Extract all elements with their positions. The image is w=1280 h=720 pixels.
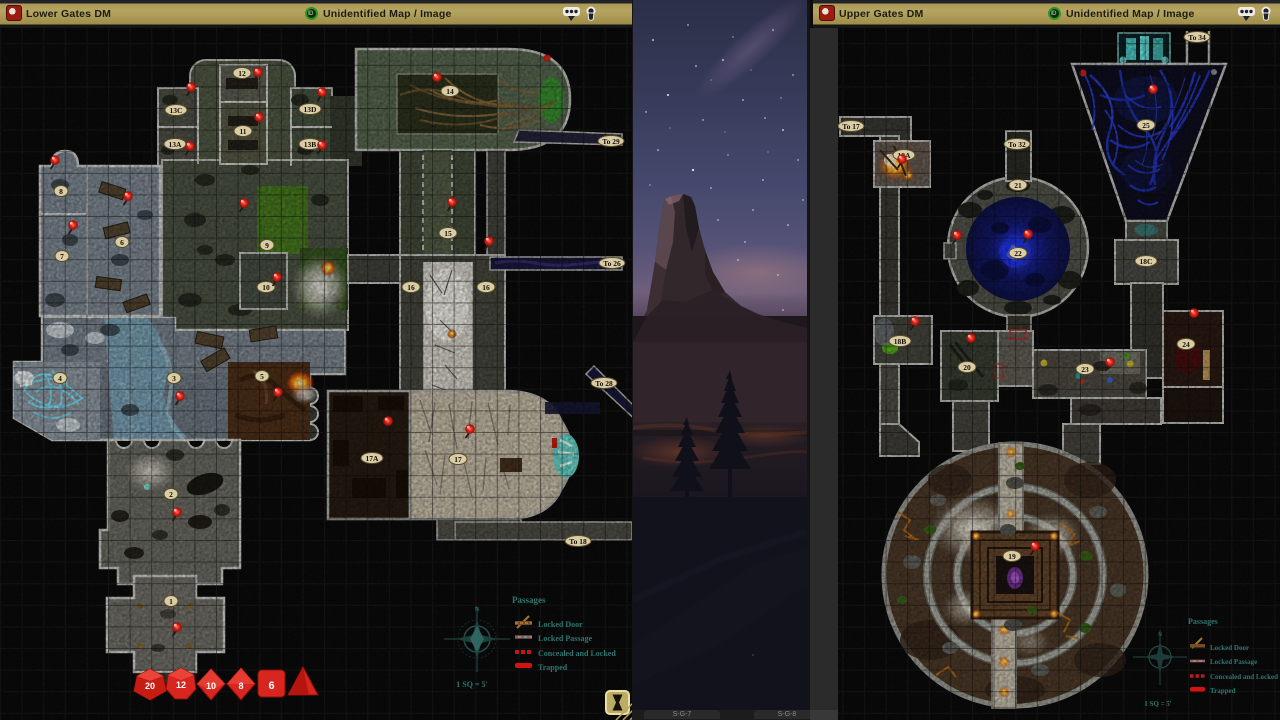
svg-text:2: 2 bbox=[169, 490, 173, 499]
svg-text:Passages: Passages bbox=[1188, 617, 1218, 626]
svg-text:To 17: To 17 bbox=[842, 122, 860, 131]
svg-text:To 18: To 18 bbox=[569, 537, 587, 546]
svg-text:16: 16 bbox=[482, 283, 490, 292]
svg-text:1: 1 bbox=[169, 597, 173, 606]
svg-text:25: 25 bbox=[1142, 121, 1150, 130]
svg-text:To 28: To 28 bbox=[595, 379, 613, 388]
svg-text:3: 3 bbox=[172, 374, 176, 383]
svg-text:To 26: To 26 bbox=[603, 259, 621, 268]
svg-text:Trapped: Trapped bbox=[1210, 687, 1236, 695]
svg-text:13C: 13C bbox=[170, 106, 183, 115]
svg-text:19: 19 bbox=[1008, 552, 1016, 561]
svg-text:To 32: To 32 bbox=[1008, 140, 1026, 149]
svg-text:Locked Passage: Locked Passage bbox=[538, 634, 592, 643]
svg-text:13D: 13D bbox=[304, 105, 318, 114]
svg-text:12: 12 bbox=[176, 680, 186, 690]
svg-text:Locked Door: Locked Door bbox=[538, 620, 583, 629]
svg-text:Concealed and Locked: Concealed and Locked bbox=[538, 649, 616, 658]
svg-text:17: 17 bbox=[454, 455, 462, 464]
svg-text:9: 9 bbox=[265, 241, 269, 250]
svg-text:23: 23 bbox=[1081, 365, 1089, 374]
svg-text:8: 8 bbox=[59, 187, 63, 196]
svg-text:N: N bbox=[1158, 633, 1162, 638]
svg-text:1 SQ = 5': 1 SQ = 5' bbox=[456, 680, 487, 689]
svg-text:18B: 18B bbox=[894, 337, 907, 346]
svg-text:To 29: To 29 bbox=[602, 137, 620, 146]
svg-text:4: 4 bbox=[58, 374, 62, 383]
svg-text:16: 16 bbox=[407, 283, 415, 292]
svg-text:10: 10 bbox=[206, 681, 216, 691]
svg-text:18C: 18C bbox=[1140, 257, 1153, 266]
svg-text:7: 7 bbox=[60, 252, 64, 261]
svg-text:22: 22 bbox=[1014, 249, 1022, 258]
svg-text:12: 12 bbox=[238, 69, 246, 78]
svg-text:Concealed and Locked: Concealed and Locked bbox=[1210, 673, 1278, 681]
svg-text:24: 24 bbox=[1182, 340, 1190, 349]
svg-text:13B: 13B bbox=[304, 140, 317, 149]
svg-text:Locked Passage: Locked Passage bbox=[1210, 658, 1257, 666]
svg-text:17A: 17A bbox=[366, 454, 380, 463]
svg-text:21: 21 bbox=[1014, 181, 1022, 190]
svg-text:1 SQ = 5': 1 SQ = 5' bbox=[1144, 700, 1172, 708]
svg-text:Locked Door: Locked Door bbox=[1210, 644, 1249, 652]
svg-text:20: 20 bbox=[963, 363, 971, 372]
svg-text:Passages: Passages bbox=[512, 595, 546, 605]
svg-text:8: 8 bbox=[238, 681, 243, 691]
svg-text:14: 14 bbox=[446, 87, 454, 96]
svg-text:5: 5 bbox=[260, 372, 264, 381]
svg-text:6: 6 bbox=[268, 680, 274, 692]
svg-text:13A: 13A bbox=[169, 140, 183, 149]
svg-text:To 34: To 34 bbox=[1188, 33, 1206, 42]
svg-text:15: 15 bbox=[444, 229, 452, 238]
svg-text:10: 10 bbox=[262, 283, 270, 292]
svg-text:11: 11 bbox=[239, 127, 246, 136]
svg-text:6: 6 bbox=[120, 238, 124, 247]
svg-text:N: N bbox=[475, 607, 480, 613]
svg-text:20: 20 bbox=[145, 681, 155, 691]
svg-text:Trapped: Trapped bbox=[538, 663, 568, 672]
